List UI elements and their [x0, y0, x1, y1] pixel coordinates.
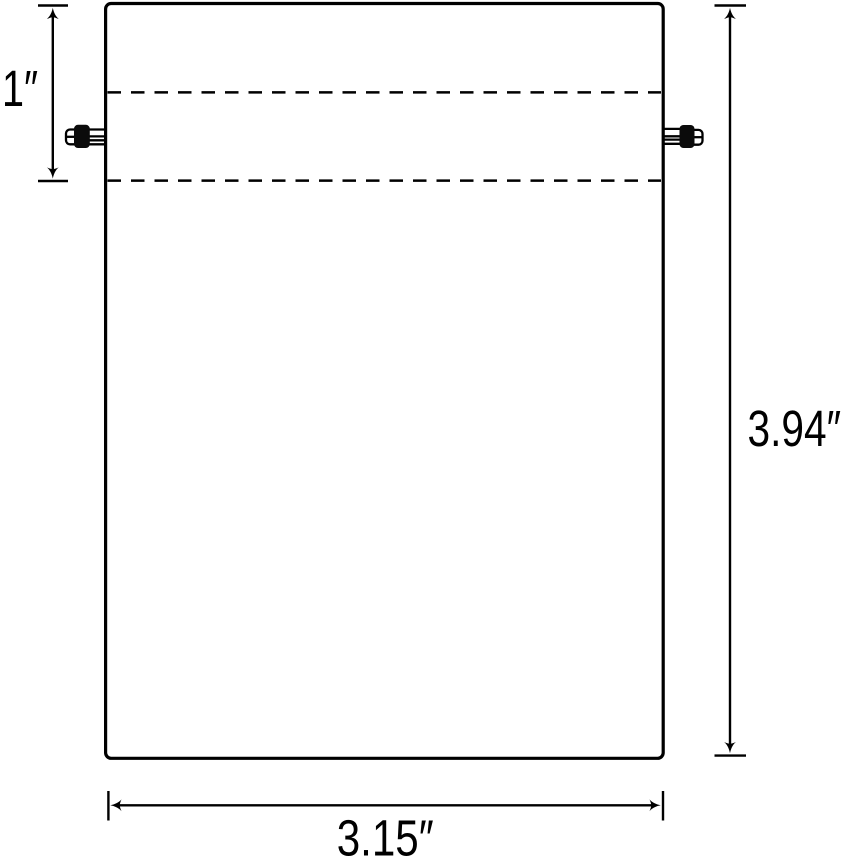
svg-text:3.15″: 3.15″ — [337, 810, 434, 857]
svg-text:3.94″: 3.94″ — [748, 400, 842, 457]
svg-text:1″: 1″ — [2, 60, 38, 117]
